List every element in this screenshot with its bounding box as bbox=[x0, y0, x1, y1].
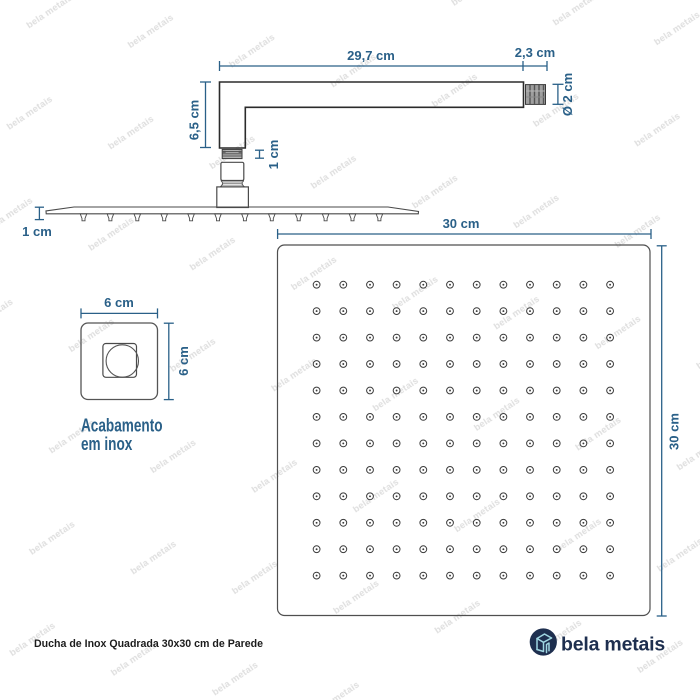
svg-text:6,5 cm: 6,5 cm bbox=[187, 100, 202, 140]
svg-text:Acabamento: Acabamento bbox=[81, 416, 163, 437]
svg-text:30 cm: 30 cm bbox=[443, 216, 480, 231]
svg-text:6 cm: 6 cm bbox=[104, 295, 134, 310]
svg-text:30 cm: 30 cm bbox=[667, 413, 682, 450]
svg-text:Ø 2 cm: Ø 2 cm bbox=[560, 73, 575, 116]
svg-text:29,7 cm: 29,7 cm bbox=[347, 48, 395, 63]
svg-text:1 cm: 1 cm bbox=[266, 140, 281, 170]
svg-text:em inox: em inox bbox=[81, 434, 132, 455]
svg-text:Ducha de Inox Quadrada 30x30 c: Ducha de Inox Quadrada 30x30 cm de Pared… bbox=[34, 638, 263, 650]
svg-text:1 cm: 1 cm bbox=[22, 224, 52, 239]
svg-text:6 cm: 6 cm bbox=[176, 346, 191, 376]
svg-text:bela metais: bela metais bbox=[561, 634, 665, 656]
svg-text:2,3 cm: 2,3 cm bbox=[515, 45, 555, 60]
